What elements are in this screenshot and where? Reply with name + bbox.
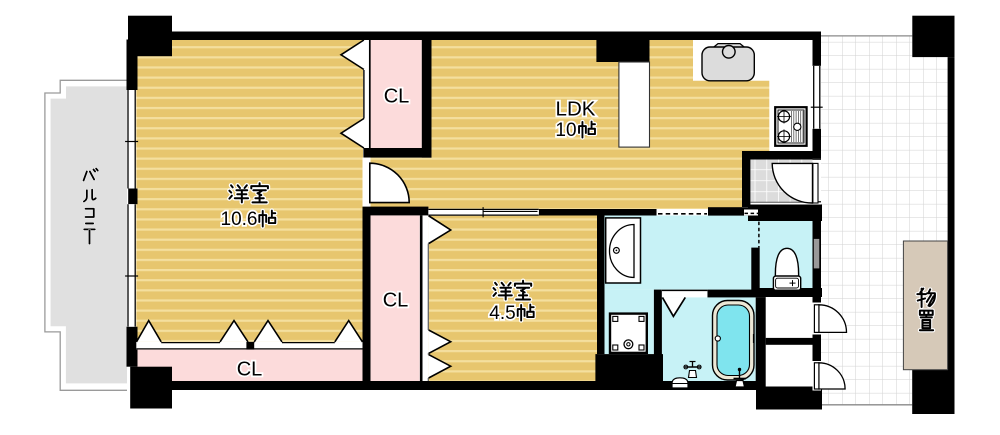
svg-text:LDK: LDK [556,98,596,121]
svg-text:CL: CL [384,85,410,107]
svg-text:10.6: 10.6 [221,209,258,230]
svg-text:10: 10 [555,120,576,141]
svg-text:CL: CL [237,358,263,380]
svg-text:4.5: 4.5 [489,303,515,324]
svg-text:CL: CL [383,289,409,311]
